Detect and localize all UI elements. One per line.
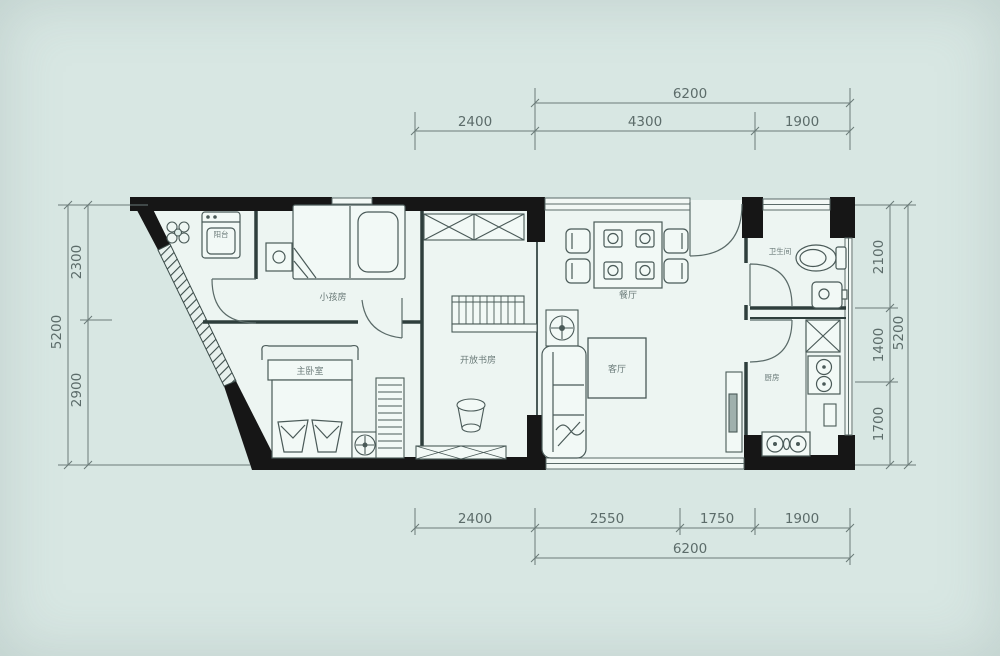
fan-icon-bedroom [352,432,378,458]
master-bed [262,346,358,458]
kitchen-sink-icon [808,356,840,394]
study-bottom-cabinet [416,446,506,459]
toilet-icon [796,245,846,271]
dim-right-seg2: 1400 [871,328,887,362]
label-balcony: 阳台 [214,229,229,239]
dim-bottom-seg3: 1750 [700,511,734,527]
dim-top-seg1: 2400 [458,114,492,130]
dim-top-seg3: 1900 [785,114,819,130]
label-bathroom: 卫生间 [769,246,792,256]
kitchen-counter-item [824,404,836,426]
label-kitchen: 厨房 [765,372,780,382]
kitchen-shaft [806,320,840,352]
sofa [542,346,586,458]
dim-bottom-seg2: 2550 [590,511,624,527]
label-kids-room: 小孩房 [319,291,346,303]
fan-icon-living [546,310,578,346]
desk [452,324,537,332]
stove-icon [762,432,810,456]
kids-nightstand [266,243,292,271]
floor-plan-svg: 阳台 小孩房 主卧室 开放书房 餐厅 客厅 卫生间 厨房 6200 2400 4… [0,0,1000,656]
bookshelf [452,296,524,324]
dim-left-seg2: 2900 [69,373,85,407]
study-top-cabinet [424,214,524,240]
dim-right-seg3: 1700 [871,407,887,441]
dim-bottom-seg1: 2400 [458,511,492,527]
label-dining-room: 餐厅 [619,289,637,301]
dim-right-seg1: 2100 [871,240,887,274]
label-open-study: 开放书房 [460,354,496,366]
tv-cabinet [726,372,742,452]
bathroom-sink-icon [812,282,847,308]
dim-bottom-overall: 6200 [673,541,707,557]
kids-bed [293,205,405,279]
dim-bottom-seg4: 1900 [785,511,819,527]
dim-top-seg2: 4300 [628,114,662,130]
dim-left-overall: 5200 [49,315,65,349]
wardrobe [376,378,404,458]
floor-plan-image: 阳台 小孩房 主卧室 开放书房 餐厅 客厅 卫生间 厨房 6200 2400 4… [0,0,1000,656]
dim-right-overall: 5200 [891,316,907,350]
dim-top-overall: 6200 [673,86,707,102]
dim-left-seg1: 2300 [69,245,85,279]
label-master-bedroom: 主卧室 [296,365,323,377]
label-living-room: 客厅 [608,363,626,375]
